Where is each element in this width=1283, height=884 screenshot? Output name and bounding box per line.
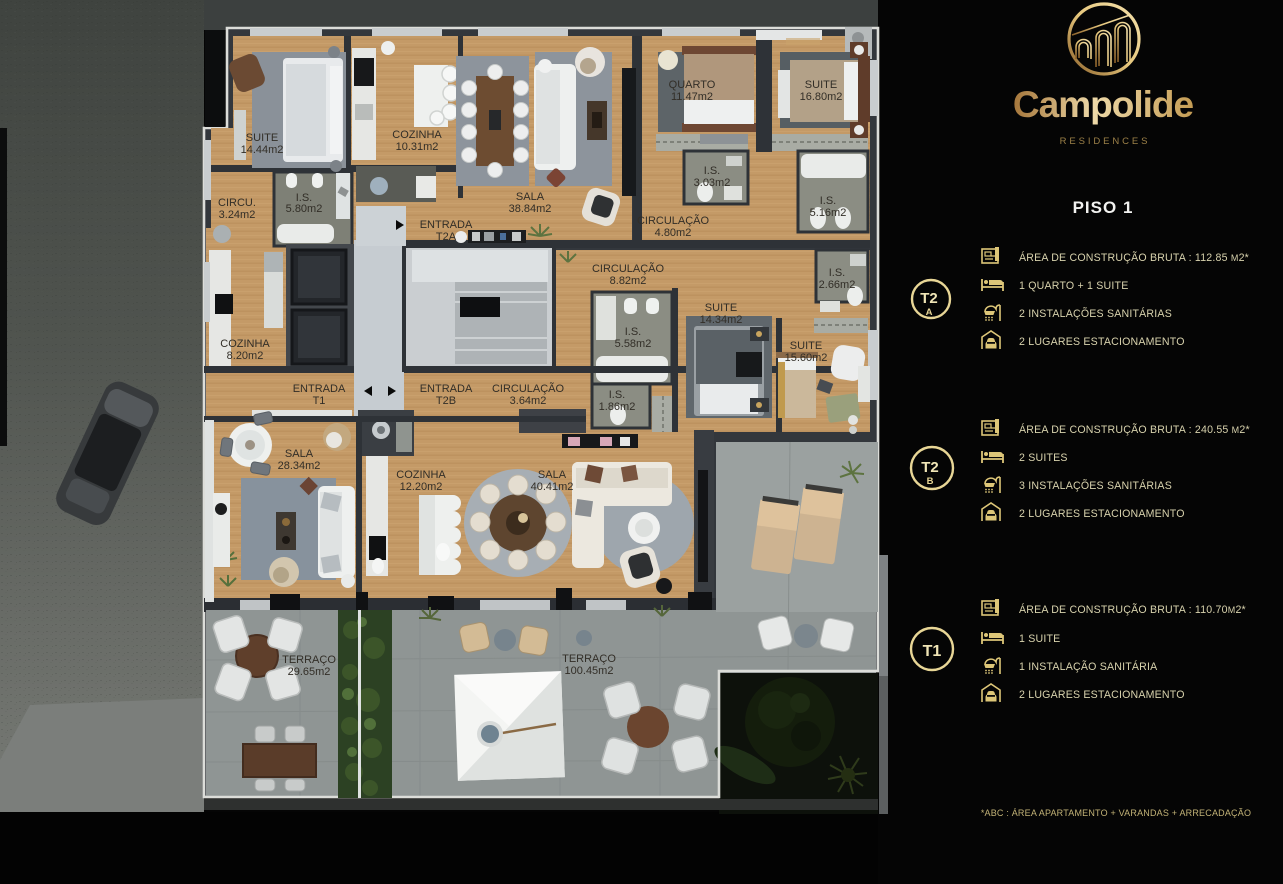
svg-text:2 LUGARES ESTACIONAMENTO: 2 LUGARES ESTACIONAMENTO	[1019, 336, 1185, 348]
svg-text:CIRCULAÇÃO: CIRCULAÇÃO	[637, 214, 710, 227]
svg-text:ÁREA DE CONSTRUÇÃO BRUTA : 24: ÁREA DE CONSTRUÇÃO BRUTA : 240.55 M2*	[1019, 423, 1250, 436]
svg-text:3.64m2: 3.64m2	[510, 395, 547, 407]
svg-text:2 LUGARES ESTACIONAMENTO: 2 LUGARES ESTACIONAMENTO	[1019, 689, 1185, 701]
svg-text:SUITE: SUITE	[790, 340, 822, 352]
svg-text:ENTRADA: ENTRADA	[293, 383, 346, 395]
svg-text:TERRAÇO: TERRAÇO	[562, 653, 616, 665]
svg-text:RESIDENCES: RESIDENCES	[1060, 136, 1151, 147]
svg-text:T1: T1	[923, 643, 942, 660]
svg-text:T2: T2	[920, 290, 938, 307]
svg-text:CIRCU.: CIRCU.	[218, 197, 256, 209]
svg-text:4.80m2: 4.80m2	[655, 227, 692, 239]
svg-text:TERRAÇO: TERRAÇO	[282, 654, 336, 666]
svg-text:2 SUITES: 2 SUITES	[1019, 452, 1068, 464]
svg-text:I.S.: I.S.	[829, 267, 846, 279]
svg-text:ÁREA DE CONSTRUÇÃO BRUTA : 11: ÁREA DE CONSTRUÇÃO BRUTA : 110.70M2*	[1019, 603, 1246, 616]
svg-text:15.60m2: 15.60m2	[785, 352, 828, 364]
svg-text:Campolide: Campolide	[1013, 84, 1194, 125]
svg-text:ENTRADA: ENTRADA	[420, 383, 473, 395]
svg-text:14.44m2: 14.44m2	[241, 144, 284, 156]
svg-text:SUITE: SUITE	[705, 302, 737, 314]
svg-text:2 LUGARES ESTACIONAMENTO: 2 LUGARES ESTACIONAMENTO	[1019, 508, 1185, 520]
svg-text:28.34m2: 28.34m2	[278, 460, 321, 472]
svg-text:SALA: SALA	[285, 448, 314, 460]
svg-text:2.66m2: 2.66m2	[819, 279, 856, 291]
svg-text:38.84m2: 38.84m2	[509, 203, 552, 215]
svg-text:I.S.: I.S.	[625, 326, 642, 338]
svg-text:ENTRADA: ENTRADA	[420, 219, 473, 231]
svg-text:1 QUARTO + 1 SUITE: 1 QUARTO + 1 SUITE	[1019, 280, 1128, 292]
svg-text:29.65m2: 29.65m2	[288, 666, 331, 678]
svg-text:I.S.: I.S.	[820, 195, 837, 207]
svg-text:A: A	[926, 307, 933, 318]
svg-text:SUITE: SUITE	[246, 132, 278, 144]
svg-text:12.20m2: 12.20m2	[400, 481, 443, 493]
svg-text:T2: T2	[921, 459, 939, 476]
svg-text:14.34m2: 14.34m2	[700, 314, 743, 326]
svg-text:8.20m2: 8.20m2	[227, 350, 264, 362]
svg-text:2 INSTALAÇÕES SANITÁRIAS: 2 INSTALAÇÕES SANITÁRIAS	[1019, 307, 1172, 320]
svg-text:1 SUITE: 1 SUITE	[1019, 633, 1060, 645]
svg-text:3 INSTALAÇÕES SANITÁRIAS: 3 INSTALAÇÕES SANITÁRIAS	[1019, 479, 1172, 492]
svg-text:SALA: SALA	[516, 191, 545, 203]
svg-text:T2A: T2A	[436, 231, 457, 243]
svg-text:COZINHA: COZINHA	[220, 338, 270, 350]
svg-text:CIRCULAÇÃO: CIRCULAÇÃO	[492, 382, 565, 395]
svg-text:5.58m2: 5.58m2	[615, 338, 652, 350]
svg-text:COZINHA: COZINHA	[396, 469, 446, 481]
svg-text:ÁREA DE CONSTRUÇÃO BRUTA : 11: ÁREA DE CONSTRUÇÃO BRUTA : 112.85 M2*	[1019, 251, 1249, 264]
svg-text:B: B	[927, 476, 934, 487]
svg-text:I.S.: I.S.	[704, 165, 721, 177]
svg-text:T2B: T2B	[436, 395, 456, 407]
svg-text:11.47m2: 11.47m2	[671, 91, 713, 103]
svg-text:16.80m2: 16.80m2	[800, 91, 843, 103]
svg-text:*ABC : ÁREA APARTAMENTO + VAR: *ABC : ÁREA APARTAMENTO + VARANDAS + ARR…	[981, 808, 1251, 818]
svg-text:40.41m2: 40.41m2	[531, 481, 574, 493]
svg-text:10.31m2: 10.31m2	[396, 141, 439, 153]
svg-text:3.03m2: 3.03m2	[694, 177, 731, 189]
svg-text:I.S.: I.S.	[609, 389, 626, 401]
svg-text:5.16m2: 5.16m2	[810, 207, 847, 219]
svg-text:QUARTO: QUARTO	[669, 79, 716, 91]
svg-text:100.45m2: 100.45m2	[565, 665, 614, 677]
svg-text:3.24m2: 3.24m2	[219, 209, 256, 221]
svg-text:8.82m2: 8.82m2	[610, 275, 647, 287]
svg-text:CIRCULAÇÃO: CIRCULAÇÃO	[592, 262, 665, 275]
svg-text:PISO 1: PISO 1	[1073, 198, 1134, 217]
svg-text:1.86m2: 1.86m2	[599, 401, 636, 413]
svg-text:5.80m2: 5.80m2	[286, 203, 323, 215]
svg-text:T1: T1	[313, 395, 326, 407]
svg-text:COZINHA: COZINHA	[392, 129, 442, 141]
svg-text:SUITE: SUITE	[805, 79, 837, 91]
svg-text:SALA: SALA	[538, 469, 567, 481]
svg-text:1 INSTALAÇÃO SANITÁRIA: 1 INSTALAÇÃO SANITÁRIA	[1019, 660, 1158, 673]
